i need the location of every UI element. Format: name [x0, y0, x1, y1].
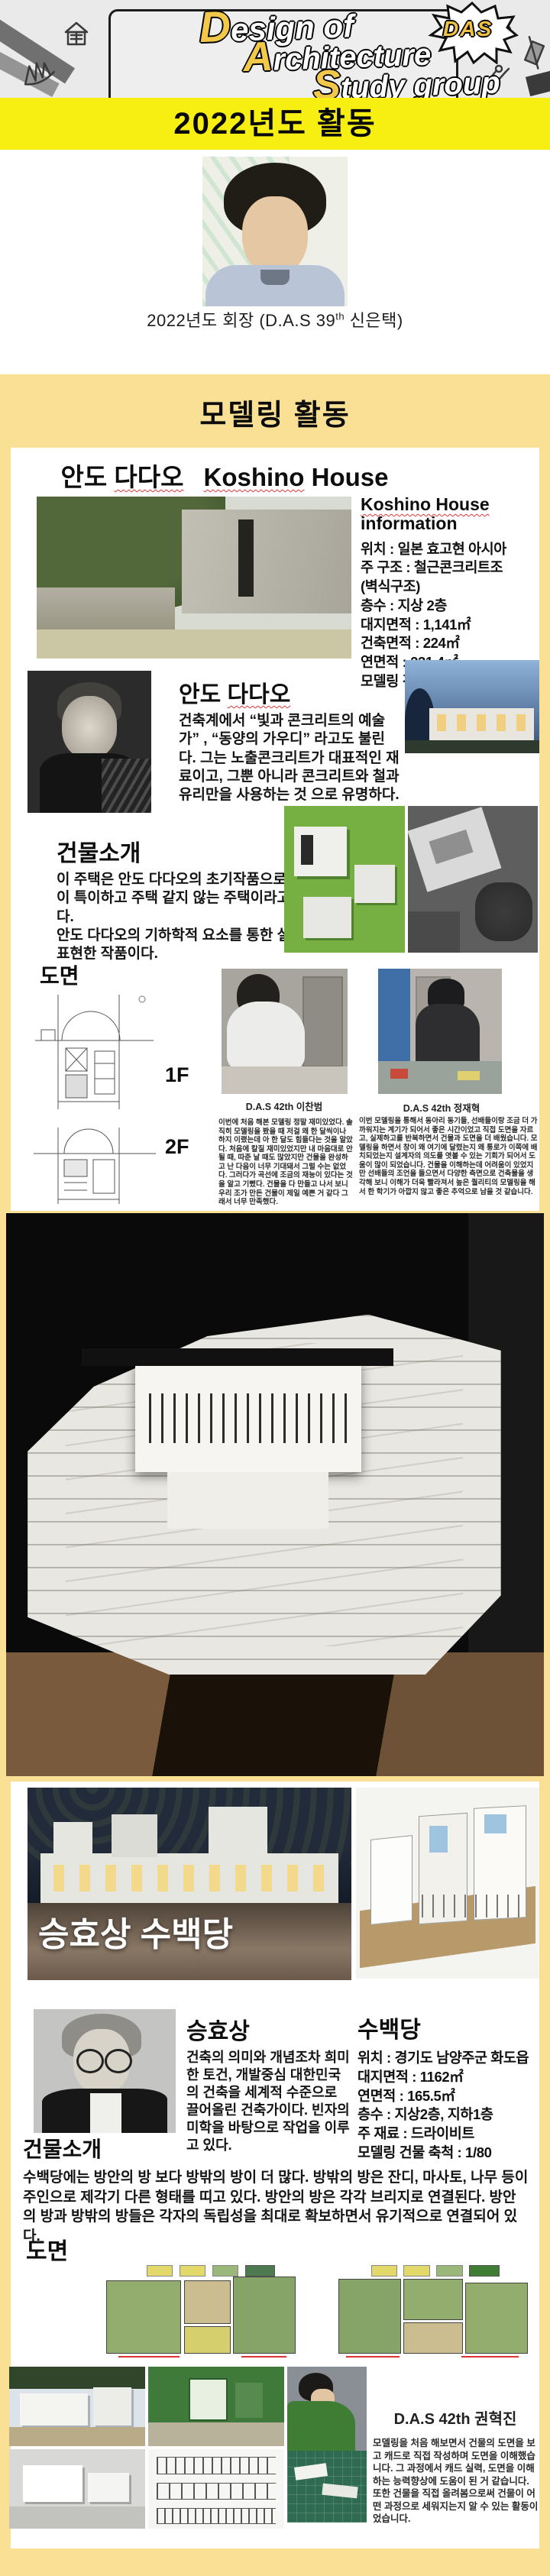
photo-layer	[303, 897, 351, 938]
photo-layer	[37, 587, 175, 636]
photo-layer	[88, 2473, 128, 2501]
info-line: (벽식구조)	[361, 578, 535, 597]
photo-layer	[182, 510, 351, 613]
subaek-heading: 수백당	[357, 2011, 421, 2044]
member2-caption: D.A.S 42th 정재혁	[373, 1100, 510, 1115]
photo-layer	[157, 2508, 277, 2524]
plan-label-chip	[245, 2265, 276, 2277]
photo-layer	[260, 270, 290, 285]
student-photo-1	[222, 969, 348, 1094]
glasses-icon	[105, 2049, 132, 2073]
info-line: 층수 : 지상 2층	[361, 597, 535, 616]
ando-heading: 안도 다다오	[179, 675, 290, 709]
photo-layer	[135, 1360, 361, 1472]
plan-label-chip	[212, 2265, 238, 2277]
member-working-photo	[287, 2367, 367, 2523]
photo-layer	[82, 1348, 393, 1367]
president-photo	[202, 157, 348, 306]
sketchup-model-image	[356, 1788, 539, 1979]
plan-label-chip	[180, 2265, 205, 2277]
photo-layer	[53, 1865, 325, 1892]
plan-room	[338, 2279, 401, 2354]
photo-layer	[287, 2401, 355, 2457]
photo-layer	[23, 2465, 82, 2502]
photo-layer	[149, 1393, 348, 1443]
photo-layer	[37, 629, 351, 659]
photo-layer	[189, 2378, 227, 2421]
subaek-info: 위치 : 경기도 남양주군 화도읍 대지면적 : 1162㎡ 연면적 : 165…	[357, 2049, 541, 2163]
plan-label-chip	[371, 2265, 397, 2277]
member3-review: 모델링을 처음 해보면서 건물의 도면을 보고 캐드로 직접 작성하며 도면을 …	[373, 2437, 539, 2526]
plan-label-chip	[403, 2265, 429, 2277]
photo-layer	[370, 1835, 412, 1925]
modeling-banner-title: 모델링 활동	[0, 391, 550, 433]
subaek-floorplan-1	[98, 2263, 302, 2362]
photo-layer	[157, 2457, 277, 2474]
president-caption: 2022년도 회장 (D.A.S 39th 신은택)	[0, 307, 550, 332]
koshino-info-heading2: information	[361, 513, 535, 533]
plan-room	[465, 2283, 528, 2354]
photo-layer	[9, 2506, 145, 2529]
photo-layer	[301, 835, 313, 864]
info-line: 대지면적 : 1162㎡	[357, 2068, 541, 2087]
header-banner: Design of Architecture Study group DAS	[0, 0, 550, 98]
glasses-icon	[76, 2049, 104, 2073]
plan-room	[106, 2280, 181, 2354]
info-line: 건축면적 : 224㎡	[361, 634, 535, 653]
koshino-exterior-photo	[37, 497, 351, 659]
info-line: 대지면적 : 1,141㎡	[361, 616, 535, 635]
photo-layer	[112, 1814, 157, 1856]
subaekdang-overlay-title: 승효상 수백당	[38, 1907, 233, 1956]
dusk-house-photo	[405, 660, 539, 753]
photo-layer	[102, 759, 151, 813]
info-line: 위치 : 일본 효고현 아시아	[361, 540, 535, 559]
seung-body: 건축의 의미와 개념조차 희미한 토건, 개발중심 대한민국의 건축을 세계적 …	[186, 2049, 353, 2154]
floor-plan-1f-drawing	[27, 987, 161, 1115]
photo-layer	[90, 2093, 121, 2133]
photo-layer	[416, 1004, 480, 1066]
photo-layer	[209, 1807, 267, 1857]
subaek-intro-body: 수백당에는 방안의 방 보다 방밖의 방이 더 많다. 방밖의 방은 잔디, 마…	[23, 2168, 529, 2247]
subaek-floorplan-2	[330, 2263, 535, 2362]
info-line: 위치 : 경기도 남양주군 화도읍	[357, 2049, 541, 2068]
logo: Design of Architecture Study group	[113, 0, 467, 98]
plan-room	[403, 2322, 462, 2354]
architecture-model-photo	[6, 1213, 544, 1776]
photo-layer	[235, 2383, 263, 2418]
das-badge-label: DAS	[443, 17, 493, 41]
info-line: 층수 : 지상2층, 지하1층	[357, 2105, 541, 2125]
koshino-title: 안도 다다오Koshino House	[11, 457, 438, 494]
ando-body: 건축계에서 “빛과 콘크리트의 예술가” , “동양의 가우디” 라고도 불린다…	[179, 712, 402, 805]
photo-layer	[484, 1814, 506, 1833]
year-banner-title: 2022년도 활동	[0, 98, 550, 150]
photo-layer	[458, 1071, 480, 1079]
subaekdang-night-photo: 승효상 수백당	[27, 1788, 351, 1980]
student-photo-2	[378, 969, 502, 1094]
photo-layer	[422, 1895, 524, 1917]
ando-portrait-photo	[27, 671, 151, 813]
photo-layer	[475, 882, 532, 941]
info-line: 주 재료 : 드라이비트	[357, 2125, 541, 2144]
subaek-render-thumb-1	[9, 2367, 145, 2446]
koshino-intro-heading: 건물소개	[57, 834, 141, 868]
plan-label-chip	[436, 2265, 462, 2277]
plan-label-chip	[147, 2265, 173, 2277]
photo-layer	[53, 1822, 92, 1856]
subaek-intro-heading: 건물소개	[23, 2133, 102, 2163]
drafting-tool-icon	[516, 31, 550, 73]
floor2-label: 2F	[165, 1135, 189, 1159]
member3-caption: D.A.S 42th 권혁진	[374, 2406, 536, 2429]
member1-review: 이번에 처음 해본 모델링 정말 재미있었다. 솔직히 모델링을 봤을 때 저걸…	[218, 1118, 354, 1207]
subaek-interior-thumb	[148, 2367, 284, 2446]
member2-review: 이번 모델링을 통해서 동아리 동기들, 선배들이랑 조금 더 가까워지는 계기…	[359, 1117, 539, 1196]
subaek-plans-heading: 도면	[26, 2232, 68, 2266]
photo-layer	[62, 696, 116, 759]
koshino-info-heading: Koshino House	[361, 495, 535, 513]
floor-plan-2f-drawing	[27, 1123, 161, 1209]
photo-layer	[157, 2483, 277, 2500]
photo-layer	[227, 1002, 305, 1072]
photo-layer	[408, 911, 460, 953]
plan-room	[184, 2280, 231, 2324]
photo-layer	[287, 2451, 367, 2523]
photo-layer	[390, 1069, 408, 1079]
photo-layer	[242, 196, 308, 276]
photo-layer	[222, 1066, 348, 1094]
plan-room	[184, 2326, 231, 2354]
member1-caption: D.A.S 42th 이찬범	[215, 1099, 353, 1113]
photo-layer	[238, 519, 254, 597]
photo-layer	[437, 714, 526, 731]
dimension-mark	[461, 2356, 519, 2358]
seung-portrait-photo	[34, 2009, 176, 2133]
photo-layer	[148, 2422, 284, 2446]
subaek-elevation-thumb	[148, 2449, 284, 2529]
dimension-mark	[346, 2356, 400, 2358]
photo-layer	[9, 2427, 145, 2446]
photo-layer	[405, 740, 539, 753]
photo-layer	[20, 2393, 88, 2426]
dimension-mark	[241, 2356, 286, 2358]
year-banner: 2022년도 활동	[0, 98, 550, 150]
plan-room	[233, 2277, 296, 2354]
floor1-label: 1F	[165, 1063, 189, 1087]
dimension-mark	[118, 2356, 180, 2358]
seung-heading: 승효상	[186, 2012, 250, 2046]
photo-layer	[93, 2387, 131, 2426]
plan-room	[403, 2279, 462, 2320]
photo-layer	[167, 1472, 328, 1529]
photo-layer	[354, 865, 396, 903]
info-line: 주 구조 : 철근콘크리트조	[361, 558, 535, 578]
model-render-photo	[284, 806, 405, 953]
koshino-plans-heading: 도면	[40, 960, 79, 990]
photo-layer	[429, 1826, 448, 1853]
aerial-bw-photo	[408, 806, 538, 953]
photo-layer	[378, 969, 410, 1066]
subaek-model-thumb	[9, 2449, 145, 2529]
plan-label-chip	[469, 2265, 500, 2277]
photo-layer	[302, 976, 344, 1067]
info-line: 연면적 : 165.5㎡	[357, 2087, 541, 2106]
poster-page: Design of Architecture Study group DAS 2…	[0, 0, 550, 2576]
info-line: 모델링 건물 축척 : 1/80	[357, 2144, 541, 2163]
house-sketch-icon	[61, 20, 92, 49]
